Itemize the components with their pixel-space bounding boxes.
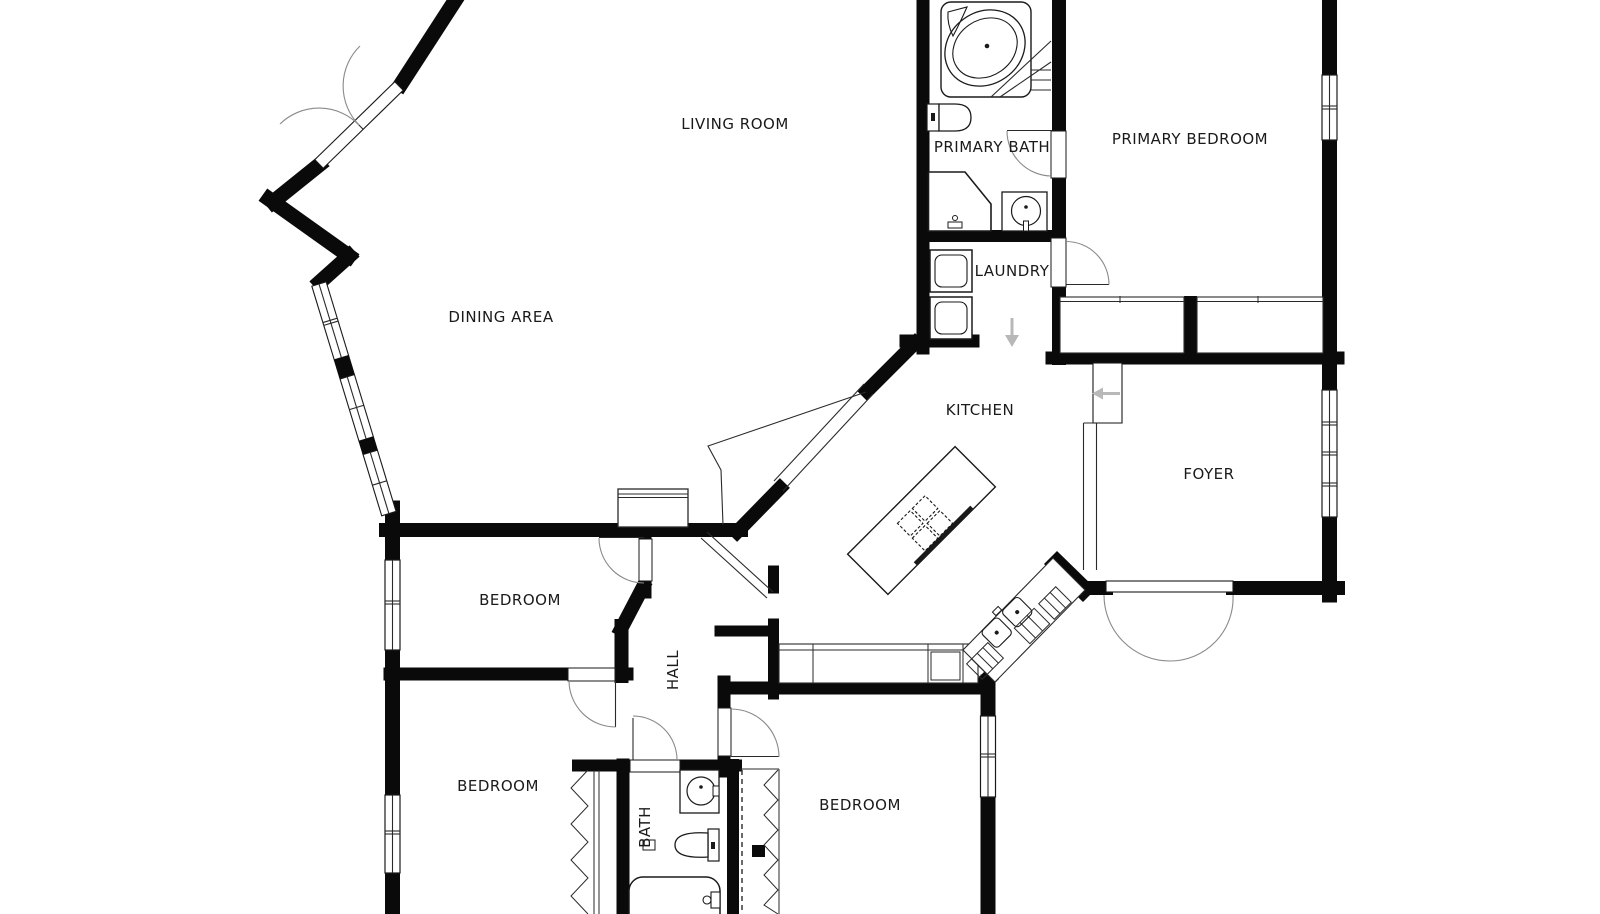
room-labels: LIVING ROOM DINING AREA PRIMARY BATH PRI… <box>448 115 1268 848</box>
step-down-arrow <box>1005 318 1019 347</box>
closet-post <box>752 845 765 857</box>
wardrobe-rail-icon <box>764 770 778 914</box>
window <box>385 795 400 873</box>
room-label-bedroom-2: BEDROOM <box>457 777 539 795</box>
sink-icon <box>1002 192 1047 231</box>
window <box>1322 390 1337 517</box>
room-label-dining-area: DINING AREA <box>448 308 553 326</box>
window <box>1322 75 1337 140</box>
corner-bathtub-icon <box>930 0 1051 102</box>
closet-divider <box>1184 296 1197 353</box>
kitchen-counter <box>779 644 978 683</box>
floor-plan-canvas: LIVING ROOM DINING AREA PRIMARY BATH PRI… <box>0 0 1600 914</box>
room-label-living-room: LIVING ROOM <box>681 115 789 133</box>
kitchen-island <box>848 447 996 595</box>
front-double-door <box>1104 581 1233 661</box>
window <box>385 560 400 650</box>
toilet-icon <box>927 104 971 131</box>
room-label-primary-bath: PRIMARY BATH <box>934 138 1050 156</box>
kitchen-fixtures <box>779 447 1085 683</box>
door-laundry <box>1051 238 1109 287</box>
primary-bath-fixtures <box>927 0 1051 231</box>
french-doors <box>280 46 403 168</box>
dryer-icon <box>930 297 972 339</box>
door-bedroom-2 <box>568 668 616 727</box>
room-label-primary-bedroom: PRIMARY BEDROOM <box>1112 130 1268 148</box>
kitchen-diagonal-counter <box>963 558 1085 682</box>
washer-icon <box>930 250 972 292</box>
doors-layer <box>280 46 1233 772</box>
room-label-foyer: FOYER <box>1183 465 1234 483</box>
vanity-sink-icon <box>680 770 719 813</box>
shower-icon <box>929 172 992 231</box>
window <box>980 716 996 797</box>
room-label-bedroom-3: BEDROOM <box>819 796 901 814</box>
laundry-fixtures <box>930 250 972 339</box>
dishwasher-icon <box>931 652 960 680</box>
bathtub-icon <box>629 877 720 914</box>
hall-closet <box>618 489 688 527</box>
wardrobe-rail-icon <box>571 770 588 914</box>
room-label-laundry: LAUNDRY <box>975 262 1050 280</box>
room-label-kitchen: KITCHEN <box>946 401 1015 419</box>
room-label-hall: HALL <box>664 650 682 690</box>
floor-plan-page: LIVING ROOM DINING AREA PRIMARY BATH PRI… <box>0 0 1600 914</box>
room-label-bath: BATH <box>636 806 654 848</box>
toilet-icon <box>675 829 719 861</box>
door-bedroom-3 <box>718 708 779 757</box>
door-bedroom-1 <box>599 538 652 584</box>
door-bath <box>630 716 680 772</box>
room-label-bedroom-1: BEDROOM <box>479 591 561 609</box>
window-run-angled <box>311 282 396 516</box>
floor-boundary-lines <box>701 384 873 598</box>
